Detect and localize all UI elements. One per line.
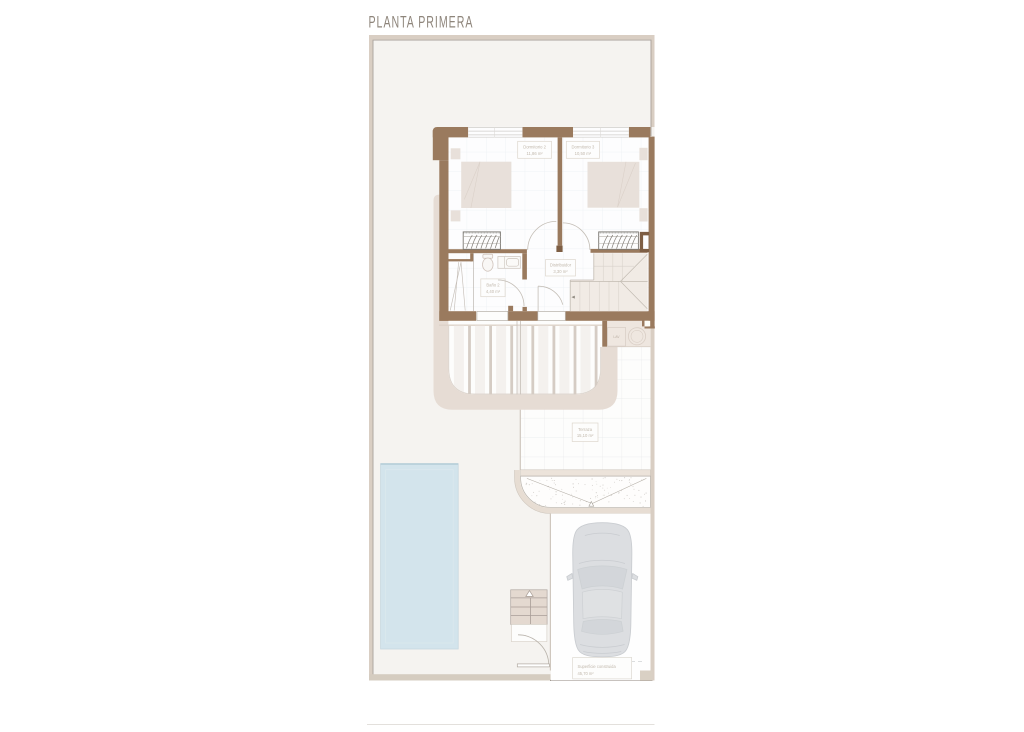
svg-text:11,86 m²: 11,86 m² — [526, 151, 543, 156]
svg-text:PLANTA PRIMERA: PLANTA PRIMERA — [369, 13, 474, 31]
svg-text:LAV: LAV — [613, 335, 620, 339]
svg-text:Baño 2: Baño 2 — [486, 283, 500, 288]
svg-text:10,50 m²: 10,50 m² — [575, 151, 592, 156]
svg-text:Dormitorio 2: Dormitorio 2 — [523, 145, 546, 150]
svg-text:Superficie construida: Superficie construida — [578, 664, 617, 669]
svg-text:Dormitorio 3: Dormitorio 3 — [571, 145, 594, 150]
svg-text:15,10 m²: 15,10 m² — [577, 433, 594, 438]
svg-text:Terraza: Terraza — [578, 427, 593, 432]
svg-text:45,70 m²: 45,70 m² — [578, 671, 595, 676]
svg-text:4,40 m²: 4,40 m² — [486, 289, 501, 294]
svg-text:Distribuidor: Distribuidor — [550, 263, 572, 268]
svg-text:3,30 m²: 3,30 m² — [553, 269, 568, 274]
